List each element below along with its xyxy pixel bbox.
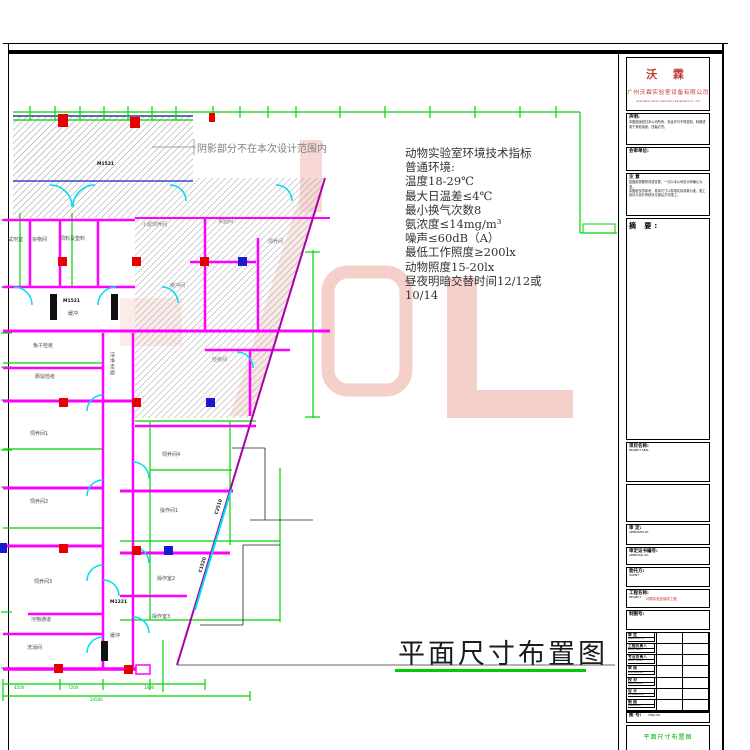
titleblock-client: 委托方: CLIENT bbox=[626, 567, 710, 587]
room-label: 小鼠饲养间 bbox=[142, 223, 167, 228]
review-unit-label: 会审单位: bbox=[627, 148, 709, 154]
summary-label: 摘 要: bbox=[627, 219, 709, 230]
room-label: 豚鼠检疫 bbox=[35, 375, 55, 380]
drawing-no-box-label: 制图号: bbox=[627, 611, 709, 617]
titleblock-project: 工程名称: PROJECT 动物实验室装修工程 bbox=[626, 589, 710, 608]
sig-row-en: SPEC. HEAD bbox=[628, 660, 655, 663]
titleblock-summary: 摘 要: bbox=[626, 218, 710, 440]
sig-row-en: DRAWN BY bbox=[628, 705, 655, 708]
dimension-number: 4500 bbox=[14, 686, 24, 690]
titleblock-review-unit: 会审单位: bbox=[626, 147, 710, 171]
dimension-number: 1800 bbox=[144, 686, 154, 690]
tech-spec-block: 动物实验室环境技术指标 普通环境: 温度18-29℃ 最大日温差≤4℃ 最小换气… bbox=[405, 146, 542, 302]
company-logo-text: 沃 霖 bbox=[627, 66, 709, 82]
sig-cell bbox=[683, 689, 709, 700]
company-name-cn: 广州沃霖实验室设备有限公司 bbox=[627, 87, 709, 96]
titleblock-drawing-no-box: 制图号: bbox=[626, 610, 710, 630]
room-label: 兔子检疫 bbox=[33, 344, 53, 349]
tech-spec-line: 普通环境: bbox=[405, 160, 542, 174]
room-label: 饲养间1 bbox=[30, 432, 48, 437]
dwg-no-cn: 图 号: bbox=[627, 713, 643, 718]
room-label: 杂物间 bbox=[32, 238, 47, 243]
titleblock-dwg-no: 图 号: DWG No. bbox=[626, 712, 710, 723]
titleblock-project-seal: 项目名称: PROJECT SEAL bbox=[626, 442, 710, 482]
scope-note: 阴影部分不在本次设计范围内 bbox=[197, 140, 327, 155]
titleblock-approval-no: 审定证书编号: APPROVAL No. bbox=[626, 547, 710, 565]
approved-sub: APPROVED BY bbox=[627, 531, 709, 534]
tech-spec-line: 最大日温差≤4℃ bbox=[405, 189, 542, 203]
tech-spec-line: 最小换气次数8 bbox=[405, 203, 542, 217]
room-label: 缓冲 bbox=[68, 312, 78, 317]
door-code: M1221 bbox=[110, 601, 127, 606]
titleblock-footer: 平面尺寸布置图 bbox=[626, 725, 710, 750]
dimension-number: 7200 bbox=[68, 686, 78, 690]
sig-cell bbox=[657, 700, 683, 711]
dimension-number: 24500 bbox=[90, 698, 103, 702]
cad-sheet: 阴影部分不在本次设计范围内 试剂室 杂物间 饲料及垫料 缓冲 兔子检疫 豚鼠检疫… bbox=[0, 0, 750, 750]
room-label: 检疫间 bbox=[212, 358, 227, 363]
notice-body-2: 本图纸仅供参考，具体尺寸以现场实际测量为准，施工前请与设计师核对无误后方可施工。 bbox=[627, 189, 709, 198]
approval-no-sub: APPROVAL No. bbox=[627, 554, 709, 557]
titleblock-signature-table: 审 定APPROVED BY 工程负责人PROJ. MGR. 专业负责人SPEC… bbox=[626, 632, 710, 712]
room-label: 饲料及垫料 bbox=[60, 237, 85, 242]
room-label: 洁净走廊 bbox=[109, 352, 114, 376]
sig-cell bbox=[683, 700, 709, 711]
titleblock-approved: 审 定: APPROVED BY bbox=[626, 524, 710, 545]
sig-row-en: CHECKED BY bbox=[628, 672, 655, 675]
tech-spec-line: 噪声≤60dB（A） bbox=[405, 231, 542, 245]
room-label: 操作室3 bbox=[152, 615, 170, 620]
sig-cell bbox=[683, 655, 709, 666]
titleblock-blank-box bbox=[626, 484, 710, 522]
titleblock-statement: 声明: 本图纸版权归本公司所有，未经许可不得复制、转借或用于其他用途，违者必究。 bbox=[626, 113, 710, 145]
sig-cell bbox=[683, 644, 709, 655]
sig-row-en: PROJ. MGR. bbox=[628, 649, 655, 652]
room-label: 实验间 bbox=[218, 220, 233, 225]
room-label: 操作室2 bbox=[157, 577, 175, 582]
tech-spec-line: 最低工作照度≥200lx bbox=[405, 245, 542, 259]
sig-cell bbox=[657, 689, 683, 700]
door-code: M1521 bbox=[97, 163, 114, 168]
sig-cell bbox=[657, 633, 683, 644]
sig-row-en: APPROVED BY bbox=[628, 638, 655, 641]
titleblock-company: 沃 霖 广州沃霖实验室设备有限公司 Guangzhou Wolin Labora… bbox=[626, 57, 710, 111]
tech-spec-line: 动物照度15-20lx bbox=[405, 260, 542, 274]
project-seal-sub: PROJECT SEAL bbox=[627, 449, 709, 452]
project-value: 动物实验室装修工程 bbox=[646, 596, 677, 601]
sig-cell bbox=[683, 678, 709, 689]
room-label: 试剂室 bbox=[8, 238, 23, 243]
company-name-en: Guangzhou Wolin Laboratory Equipment Co.… bbox=[631, 99, 705, 103]
room-label: 饲养间3 bbox=[34, 580, 52, 585]
tech-spec-line: 氨浓度≤14mg/m³ bbox=[405, 217, 542, 231]
client-sub: CLIENT bbox=[627, 574, 709, 577]
sig-cell bbox=[683, 633, 709, 644]
sig-row-en: PROOFREAD bbox=[628, 683, 655, 686]
room-label: 饲养间4 bbox=[162, 453, 180, 458]
room-label: 缓冲 bbox=[110, 634, 120, 639]
drawing-title-underline bbox=[395, 669, 586, 672]
tech-spec-line: 温度18-29℃ bbox=[405, 174, 542, 188]
titleblock-notice: 注 意 如图纸需要修改或变更，一切以本公司设计师确认为准。 本图纸仅供参考，具体… bbox=[626, 173, 710, 216]
sig-cell bbox=[683, 666, 709, 677]
sig-cell bbox=[657, 644, 683, 655]
door-code: M1521 bbox=[63, 300, 80, 305]
room-label: 饲养间2 bbox=[30, 500, 48, 505]
drawing-title: 平面尺寸布置图 bbox=[398, 632, 608, 671]
room-label: 污物通道 bbox=[31, 618, 51, 623]
tech-spec-line: 10/14 bbox=[405, 288, 542, 302]
tech-spec-line: 动物实验室环境技术指标 bbox=[405, 146, 542, 160]
tech-spec-line: 昼夜明暗交替时间12/12或 bbox=[405, 274, 542, 288]
room-label: 洗消间 bbox=[27, 646, 42, 651]
notice-body-1: 如图纸需要修改或变更，一切以本公司设计师确认为准。 bbox=[627, 180, 709, 189]
dwg-no-en: DWG No. bbox=[646, 714, 663, 717]
project-sub: PROJECT bbox=[627, 596, 643, 601]
room-label: 操作间1 bbox=[160, 509, 178, 514]
sig-cell bbox=[657, 655, 683, 666]
statement-body: 本图纸版权归本公司所有，未经许可不得复制、转借或用于其他用途，违者必究。 bbox=[627, 120, 709, 129]
frame-right bbox=[722, 43, 724, 750]
sig-cell bbox=[657, 666, 683, 677]
sig-row-en: DESIGNED BY bbox=[628, 694, 655, 697]
footer-drawing-title: 平面尺寸布置图 bbox=[627, 726, 709, 741]
sig-cell bbox=[657, 678, 683, 689]
room-label: 饲养间 bbox=[268, 240, 283, 245]
room-label: 缓冲间 bbox=[170, 284, 185, 289]
